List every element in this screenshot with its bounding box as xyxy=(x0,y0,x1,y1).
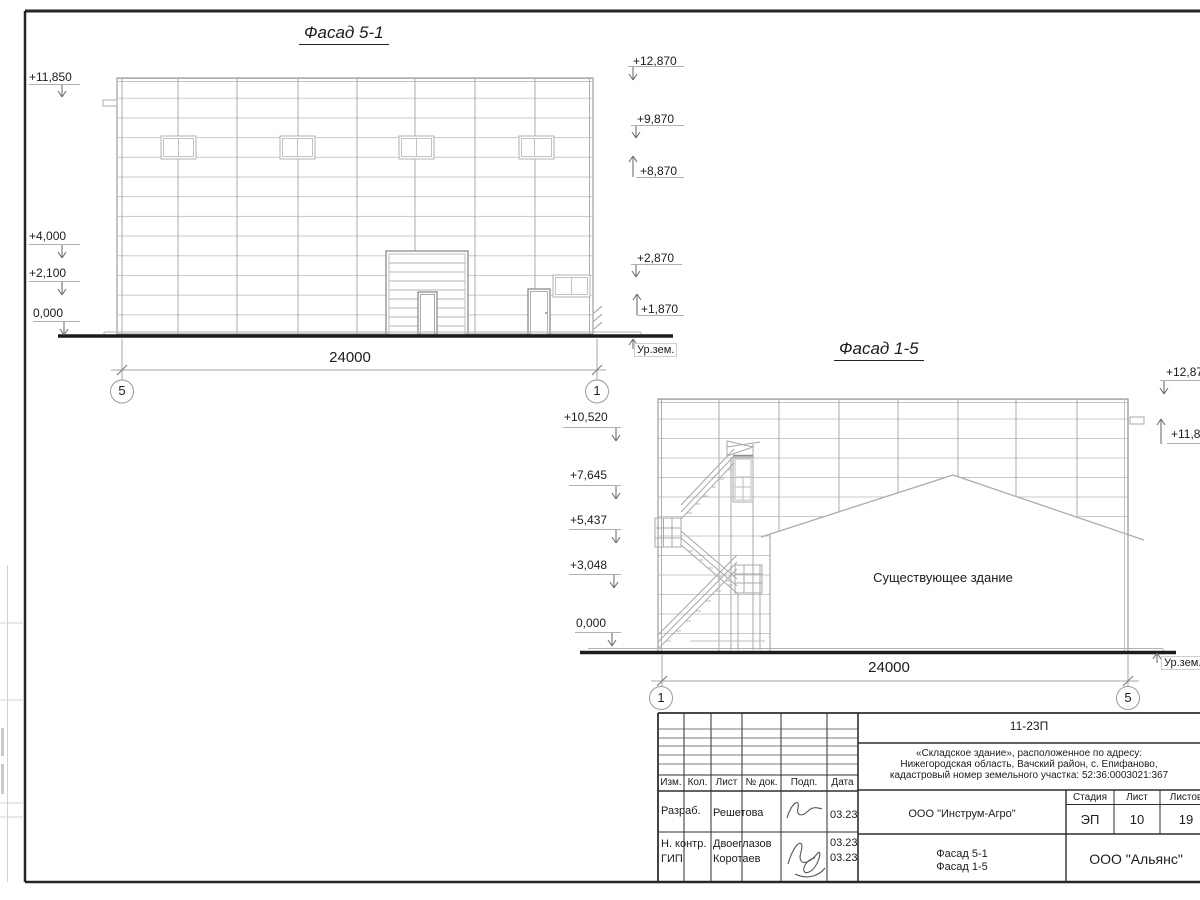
tb-name: Двоеглазов xyxy=(713,838,771,851)
tb-col-list: Лист xyxy=(711,777,742,789)
existing-building-label: Существующее здание xyxy=(858,571,1028,586)
drawing-sheet: Фасад 5-1 Фасад 1-5 +11,850 +4,000 +2,10… xyxy=(0,0,1200,900)
facade-5-1-title: Фасад 5-1 xyxy=(299,23,389,45)
elevation-underline xyxy=(631,125,684,126)
tb-col-doc: № док. xyxy=(742,777,781,789)
tb-col-kol: Кол. xyxy=(684,777,711,789)
elevation-underline xyxy=(628,66,684,67)
elevation-underline xyxy=(575,632,621,633)
elevation-underline xyxy=(631,264,682,265)
tb-name: Коротаев xyxy=(713,853,761,866)
elevation-mark: +2,100 xyxy=(29,267,66,281)
elevation-underline xyxy=(569,574,621,575)
signature-strokes xyxy=(787,803,825,877)
ground-level-label: Ур.зем. xyxy=(1161,656,1200,670)
tb-total-header: Листов xyxy=(1160,792,1200,804)
facade-5-1-gate xyxy=(386,251,468,334)
elevation-underline xyxy=(563,427,621,428)
ground-level-label: Ур.зем. xyxy=(634,343,677,357)
elevation-mark: +10,520 xyxy=(564,411,608,425)
sheet-number: 10 xyxy=(1114,813,1160,828)
tb-role: ГИП xyxy=(661,853,683,866)
tb-date: 03.23 xyxy=(830,837,858,850)
elevation-mark: +11,850 xyxy=(1171,428,1200,442)
project-address-line: Нижегородская область, Вачский район, с.… xyxy=(860,759,1198,771)
facade-5-1-door xyxy=(528,289,550,334)
elevation-underline xyxy=(33,321,80,322)
elevation-underline xyxy=(569,485,621,486)
sheet-margin-stamp xyxy=(0,565,24,882)
elevation-mark: 0,000 xyxy=(576,617,606,631)
facade-1-5-title: Фасад 1-5 xyxy=(834,339,924,361)
tb-role: Разраб. xyxy=(661,805,701,818)
axis-bubble-5: 5 xyxy=(1116,691,1140,706)
elevation-underline xyxy=(637,315,684,316)
stage-value: ЭП xyxy=(1066,813,1114,828)
project-address-line: кадастровый номер земельного участка: 52… xyxy=(860,770,1198,782)
elevation-underline xyxy=(1167,443,1200,444)
drawing-title-line: Фасад 5-1 xyxy=(858,848,1066,861)
organization-name: ООО "Альянс" xyxy=(1066,851,1200,867)
elevation-mark: +3,048 xyxy=(570,559,607,573)
elevation-mark: +4,000 xyxy=(29,230,66,244)
facade-5-1-small-window xyxy=(553,275,590,297)
dimension-label: 24000 xyxy=(849,659,929,676)
tb-col-izm: Изм. xyxy=(658,777,684,789)
tb-col-data: Дата xyxy=(827,777,858,789)
tb-date: 03.23 xyxy=(830,809,858,822)
axis-bubble-5: 5 xyxy=(110,384,134,399)
elevation-underline xyxy=(29,244,80,245)
elevation-mark: 0,000 xyxy=(33,307,63,321)
dimension-label: 24000 xyxy=(310,349,390,366)
drawing-title-line: Фасад 1-5 xyxy=(858,861,1066,874)
tb-role: Н. контр. xyxy=(661,838,706,851)
document-code: 11-23П xyxy=(858,720,1200,734)
elevation-underline xyxy=(29,84,80,85)
tb-name: Решетова xyxy=(713,807,763,820)
tb-sheet-header: Лист xyxy=(1114,792,1160,804)
sheet-total: 19 xyxy=(1160,813,1200,828)
tb-col-podp: Подп. xyxy=(781,777,827,789)
elevation-mark: +7,645 xyxy=(570,469,607,483)
elevation-underline xyxy=(636,177,684,178)
tb-stage-header: Стадия xyxy=(1066,792,1114,804)
axis-bubble-1: 1 xyxy=(649,691,673,706)
elevation-underline xyxy=(1160,380,1200,381)
elevation-underline xyxy=(29,281,80,282)
tb-date: 03.23 xyxy=(830,852,858,865)
project-address-line: «Складское здание», расположенное по адр… xyxy=(860,748,1198,760)
client-name: ООО "Инструм-Агро" xyxy=(858,808,1066,821)
elevation-mark: +12,870 xyxy=(1166,366,1200,380)
elevation-mark: +5,437 xyxy=(570,514,607,528)
elevation-mark: +11,850 xyxy=(29,71,72,85)
elevation-underline xyxy=(569,529,621,530)
axis-bubble-1: 1 xyxy=(585,384,609,399)
